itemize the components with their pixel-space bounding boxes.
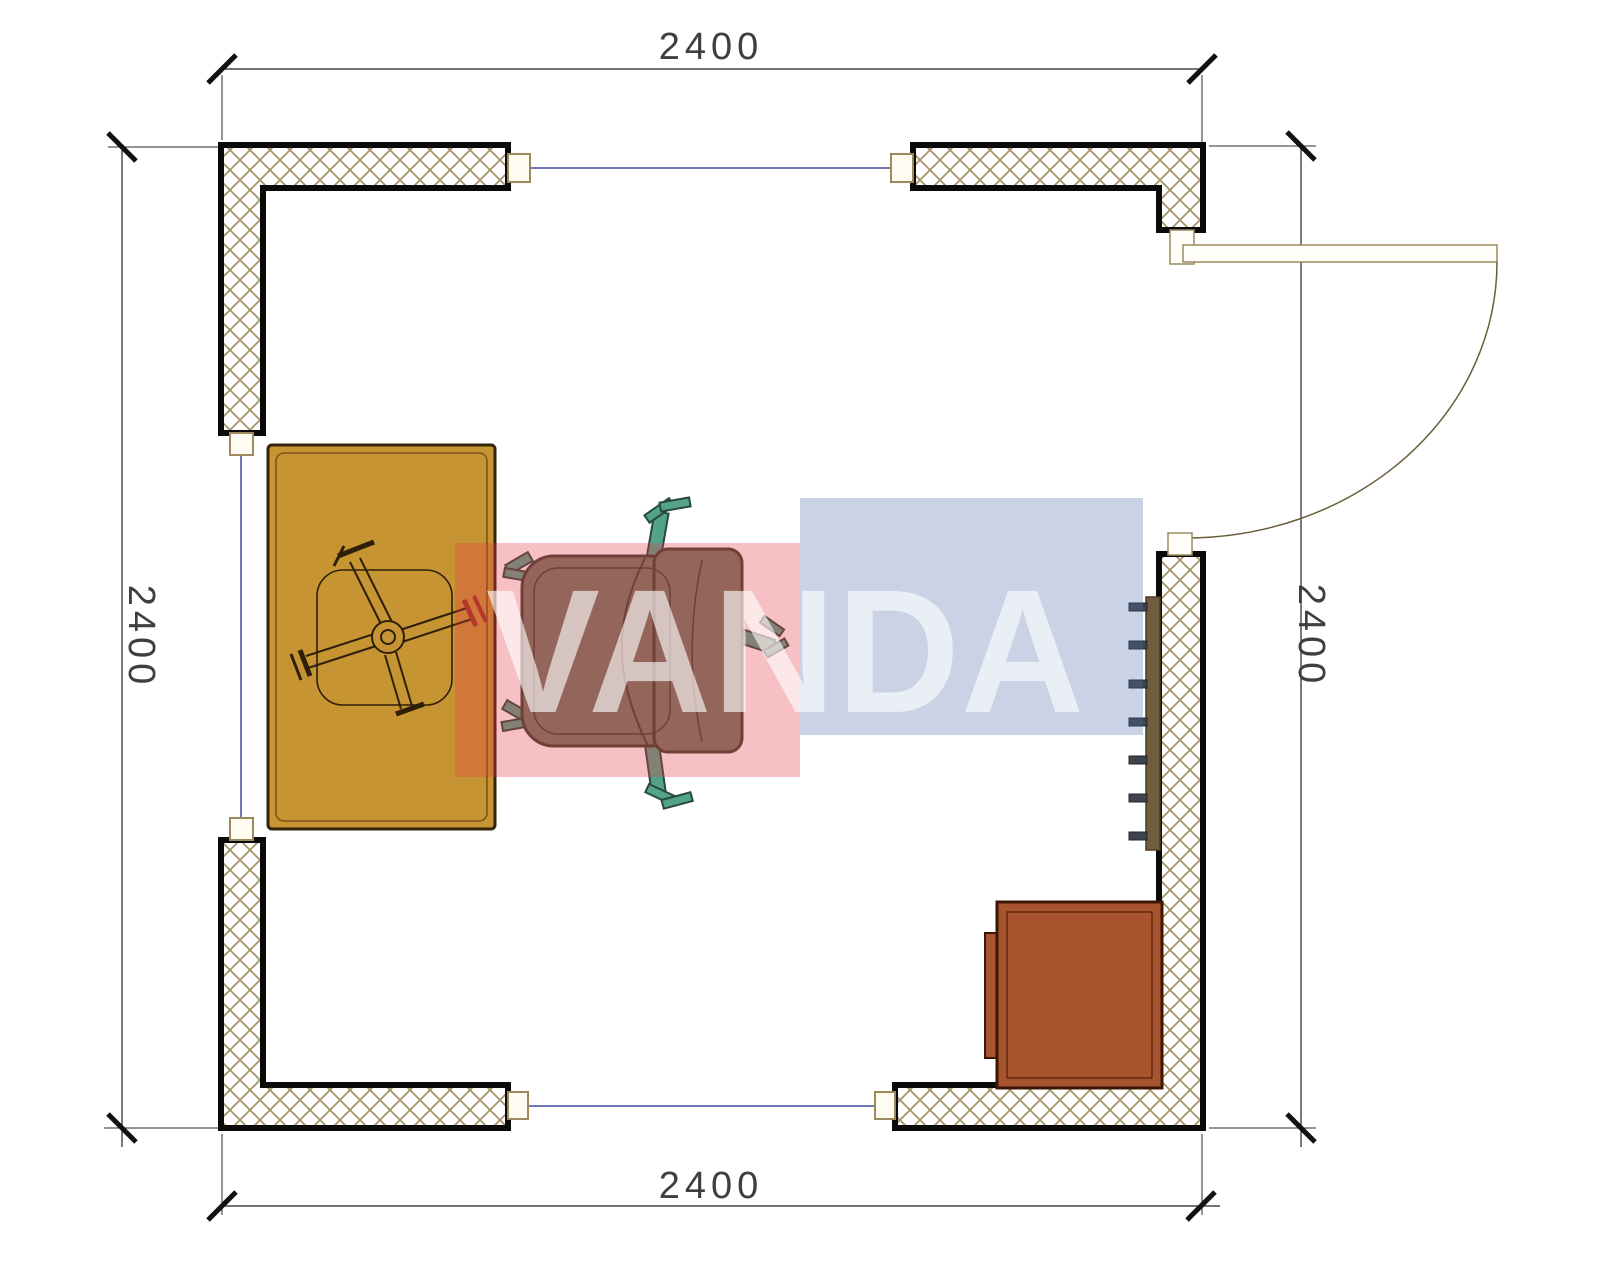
- door-panel: [1183, 245, 1497, 262]
- door-swing-arc: [1188, 262, 1497, 538]
- dimension-label-right: 2400: [1291, 486, 1331, 786]
- dimension-label-bottom: 2400: [561, 1166, 861, 1206]
- dimension-label-top: 2400: [561, 27, 861, 67]
- door-stop: [1168, 533, 1192, 555]
- floor-plan-canvas: VANDA 2400 2400 2400 2400: [0, 0, 1600, 1280]
- wall-bottom-left: [221, 840, 508, 1128]
- door: [1168, 230, 1497, 555]
- cabinet: [985, 902, 1162, 1088]
- dimension-label-left: 2400: [121, 487, 161, 787]
- wall-top-right: [913, 145, 1203, 230]
- watermark-text: VANDA: [486, 564, 1126, 740]
- wall-top-left: [221, 145, 508, 433]
